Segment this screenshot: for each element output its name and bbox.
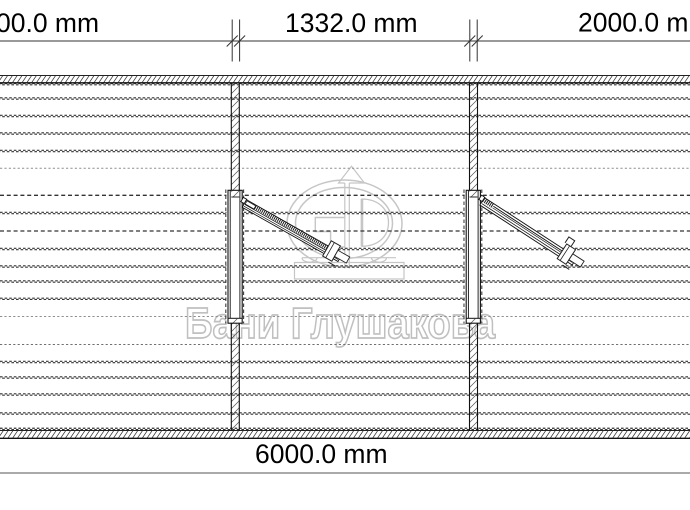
svg-text:2000.0 mm: 2000.0 mm	[578, 8, 690, 38]
svg-text:2700.0 mm: 2700.0 mm	[0, 8, 99, 38]
svg-text:1332.0 mm: 1332.0 mm	[285, 8, 418, 38]
svg-text:6000.0 mm: 6000.0 mm	[255, 439, 388, 469]
